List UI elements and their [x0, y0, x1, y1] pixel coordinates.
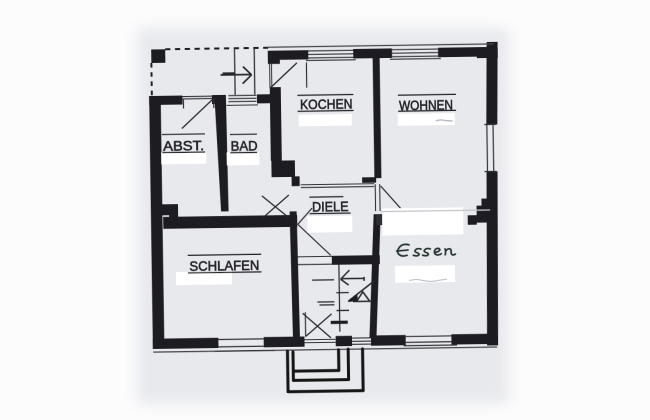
svg-text:SCHLAFEN: SCHLAFEN — [189, 257, 259, 274]
svg-text:BAD: BAD — [230, 137, 257, 153]
svg-text:DIELE: DIELE — [312, 198, 349, 215]
svg-text:WOHNEN: WOHNEN — [399, 96, 453, 113]
svg-text:ABST.: ABST. — [163, 137, 204, 154]
svg-text:KOCHEN: KOCHEN — [300, 96, 353, 113]
